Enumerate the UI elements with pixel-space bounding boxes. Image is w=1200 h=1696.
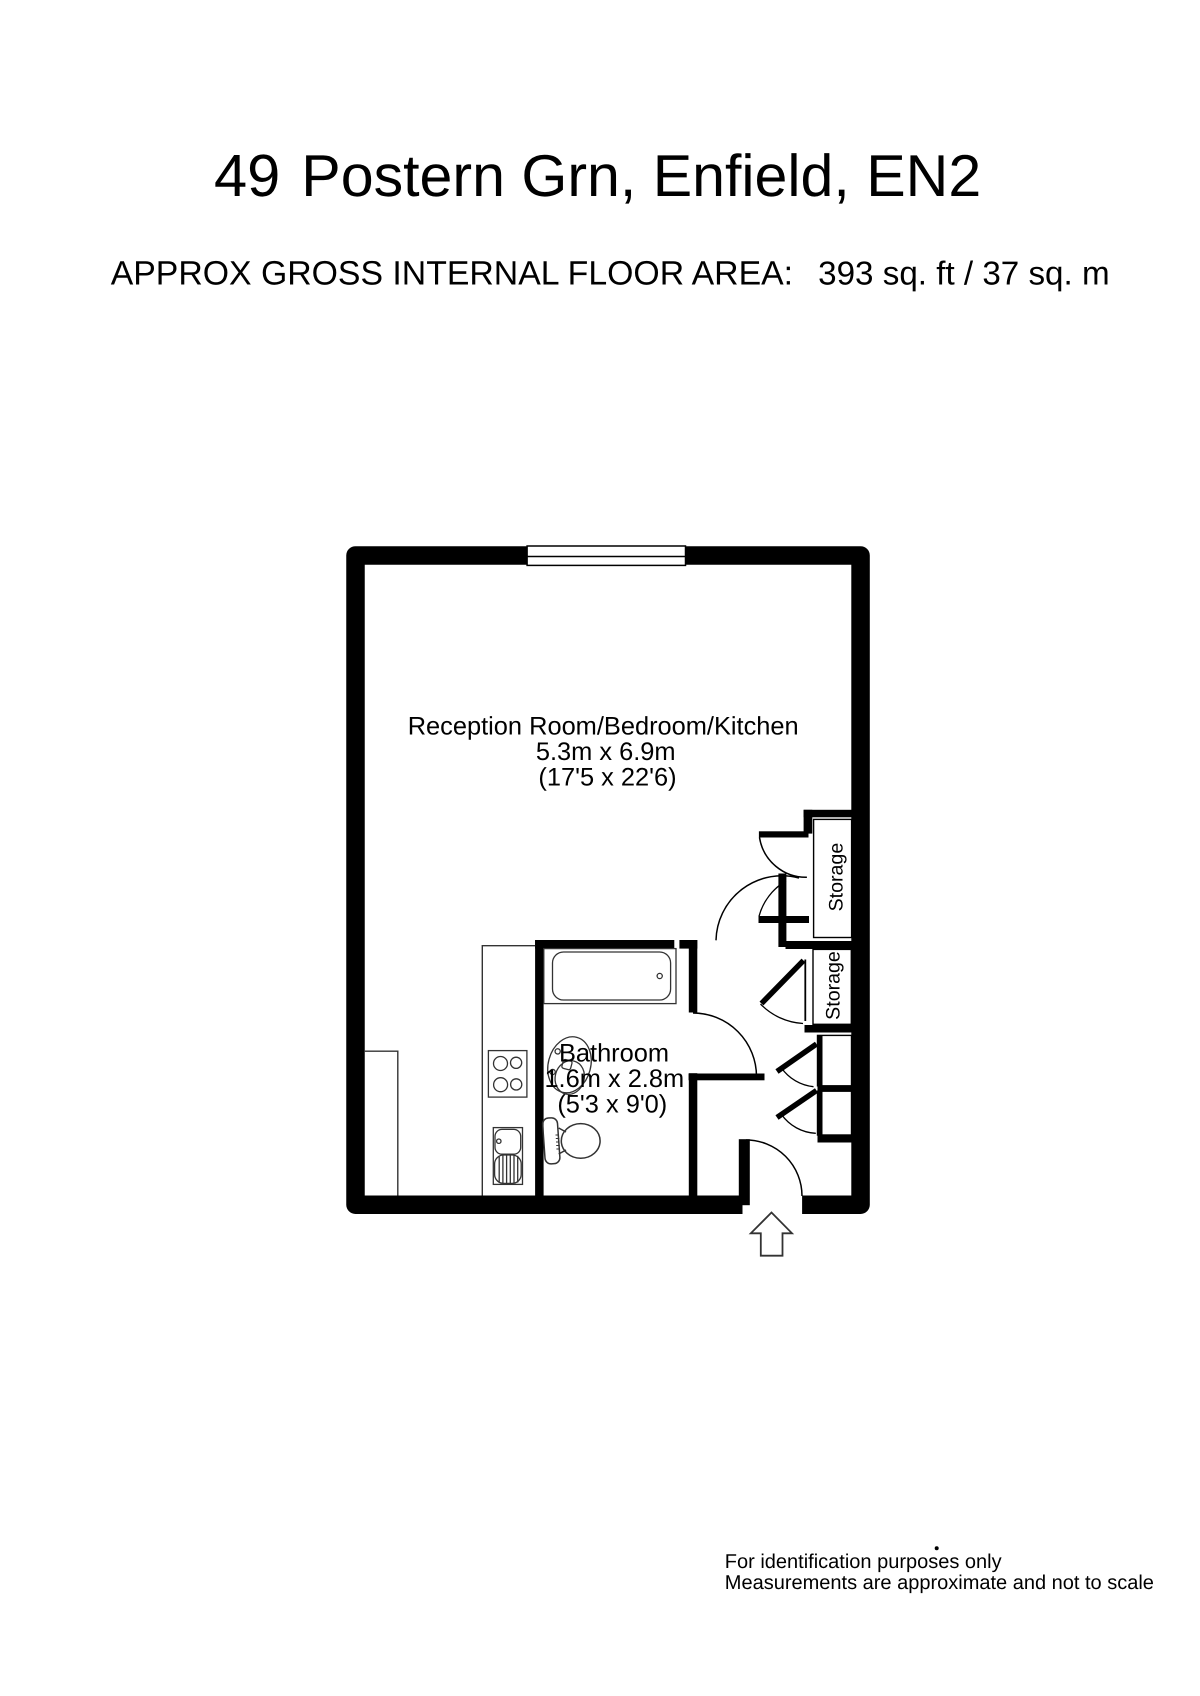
svg-text:(17'5 x 22'6): (17'5 x 22'6) [538, 764, 676, 792]
svg-text:1.6m x 2.8m: 1.6m x 2.8m [544, 1065, 684, 1093]
svg-text:(5'3 x 9'0): (5'3 x 9'0) [557, 1090, 667, 1118]
svg-text:Postern Grn, Enfield, EN2: Postern Grn, Enfield, EN2 [301, 142, 981, 209]
svg-text:APPROX GROSS INTERNAL FLOOR AR: APPROX GROSS INTERNAL FLOOR AREA: [111, 255, 793, 293]
svg-text:For identification purposes on: For identification purposes only [725, 1551, 1002, 1573]
svg-text:Storage: Storage [823, 951, 845, 1020]
svg-text:5.3m x 6.9m: 5.3m x 6.9m [536, 738, 676, 766]
svg-text:49: 49 [214, 142, 280, 209]
svg-text:Storage: Storage [825, 843, 847, 912]
svg-text:Bathroom: Bathroom [559, 1040, 669, 1068]
svg-text:Reception Room/Bedroom/Kitchen: Reception Room/Bedroom/Kitchen [408, 712, 799, 740]
svg-text:393 sq. ft / 37 sq. m: 393 sq. ft / 37 sq. m [818, 256, 1109, 293]
svg-text:Measurements are approximate a: Measurements are approximate and not to … [725, 1572, 1154, 1594]
